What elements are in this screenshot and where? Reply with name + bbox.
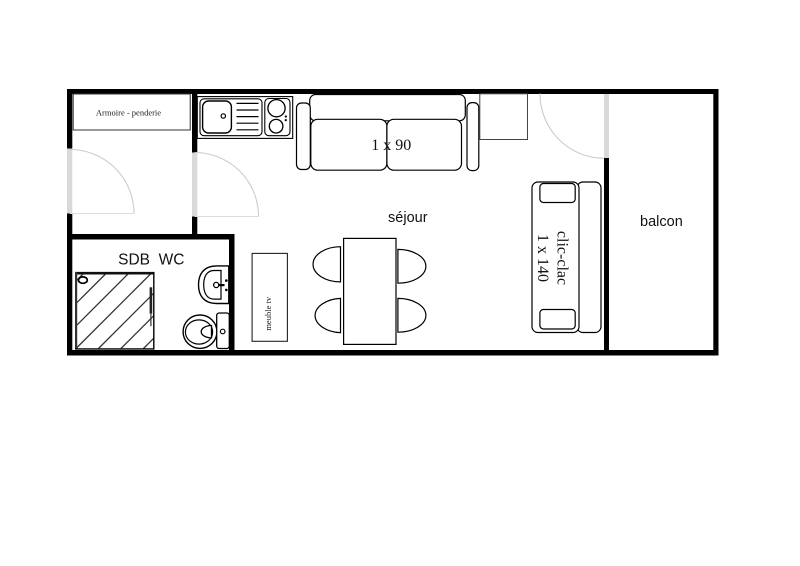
svg-text:1 x 140: 1 x 140 xyxy=(534,234,551,282)
svg-text:SDB WC: SDB WC xyxy=(118,251,184,268)
svg-text:meuble tv: meuble tv xyxy=(263,296,273,331)
svg-text:clic-clac: clic-clac xyxy=(554,231,571,285)
svg-text:1 x 90: 1 x 90 xyxy=(371,137,411,154)
svg-text:séjour: séjour xyxy=(388,210,428,226)
svg-text:balcon: balcon xyxy=(640,214,683,230)
svg-text:Armoire - penderie: Armoire - penderie xyxy=(96,108,161,118)
